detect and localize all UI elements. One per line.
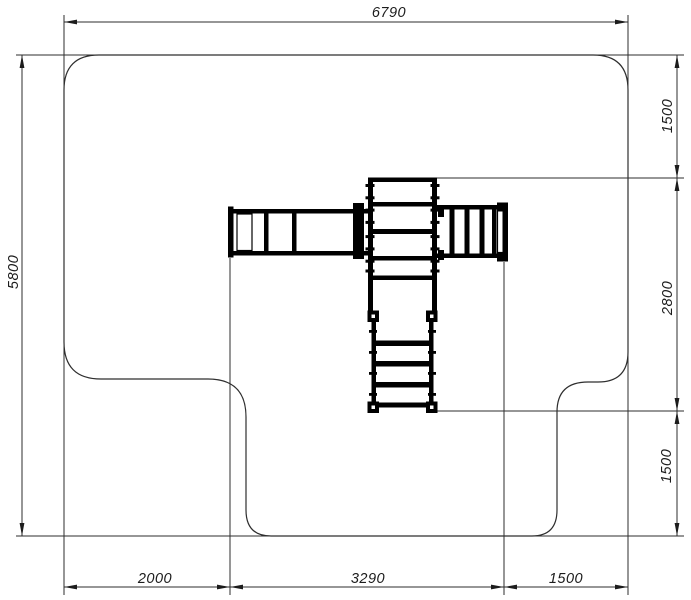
right-top-offset-label: 1500 [660, 99, 676, 133]
ladder-right [437, 203, 508, 262]
overall-width-label: 6790 [372, 5, 406, 21]
drawing-sheet: 6790 5800 1500 2800 1500 2000 3290 1500 [0, 0, 691, 600]
play-structure [228, 178, 508, 414]
tower [366, 178, 440, 281]
dimension-right-column: 1500 2800 1500 [659, 55, 679, 536]
equipment-width-label: 3290 [351, 571, 385, 587]
dimension-bottom-row: 2000 3290 1500 [64, 571, 628, 589]
overall-height-label: 5800 [6, 255, 22, 289]
stair-posts-top [368, 311, 438, 323]
bridge-left [228, 203, 368, 259]
bridge-plank-panel [237, 214, 252, 251]
technical-drawing: 6790 5800 1500 2800 1500 2000 3290 1500 [0, 0, 691, 600]
stair-section [368, 280, 438, 413]
right-bottom-offset-label: 1500 [659, 449, 675, 483]
extension-lines [16, 15, 684, 595]
equipment-depth-label: 2800 [660, 281, 676, 316]
dimension-overall-height: 5800 [6, 55, 24, 536]
bottom-right-offset-label: 1500 [549, 571, 583, 587]
dimension-overall-width: 6790 [64, 5, 628, 24]
safety-zone-outline [64, 55, 628, 536]
bottom-left-offset-label: 2000 [137, 571, 172, 587]
